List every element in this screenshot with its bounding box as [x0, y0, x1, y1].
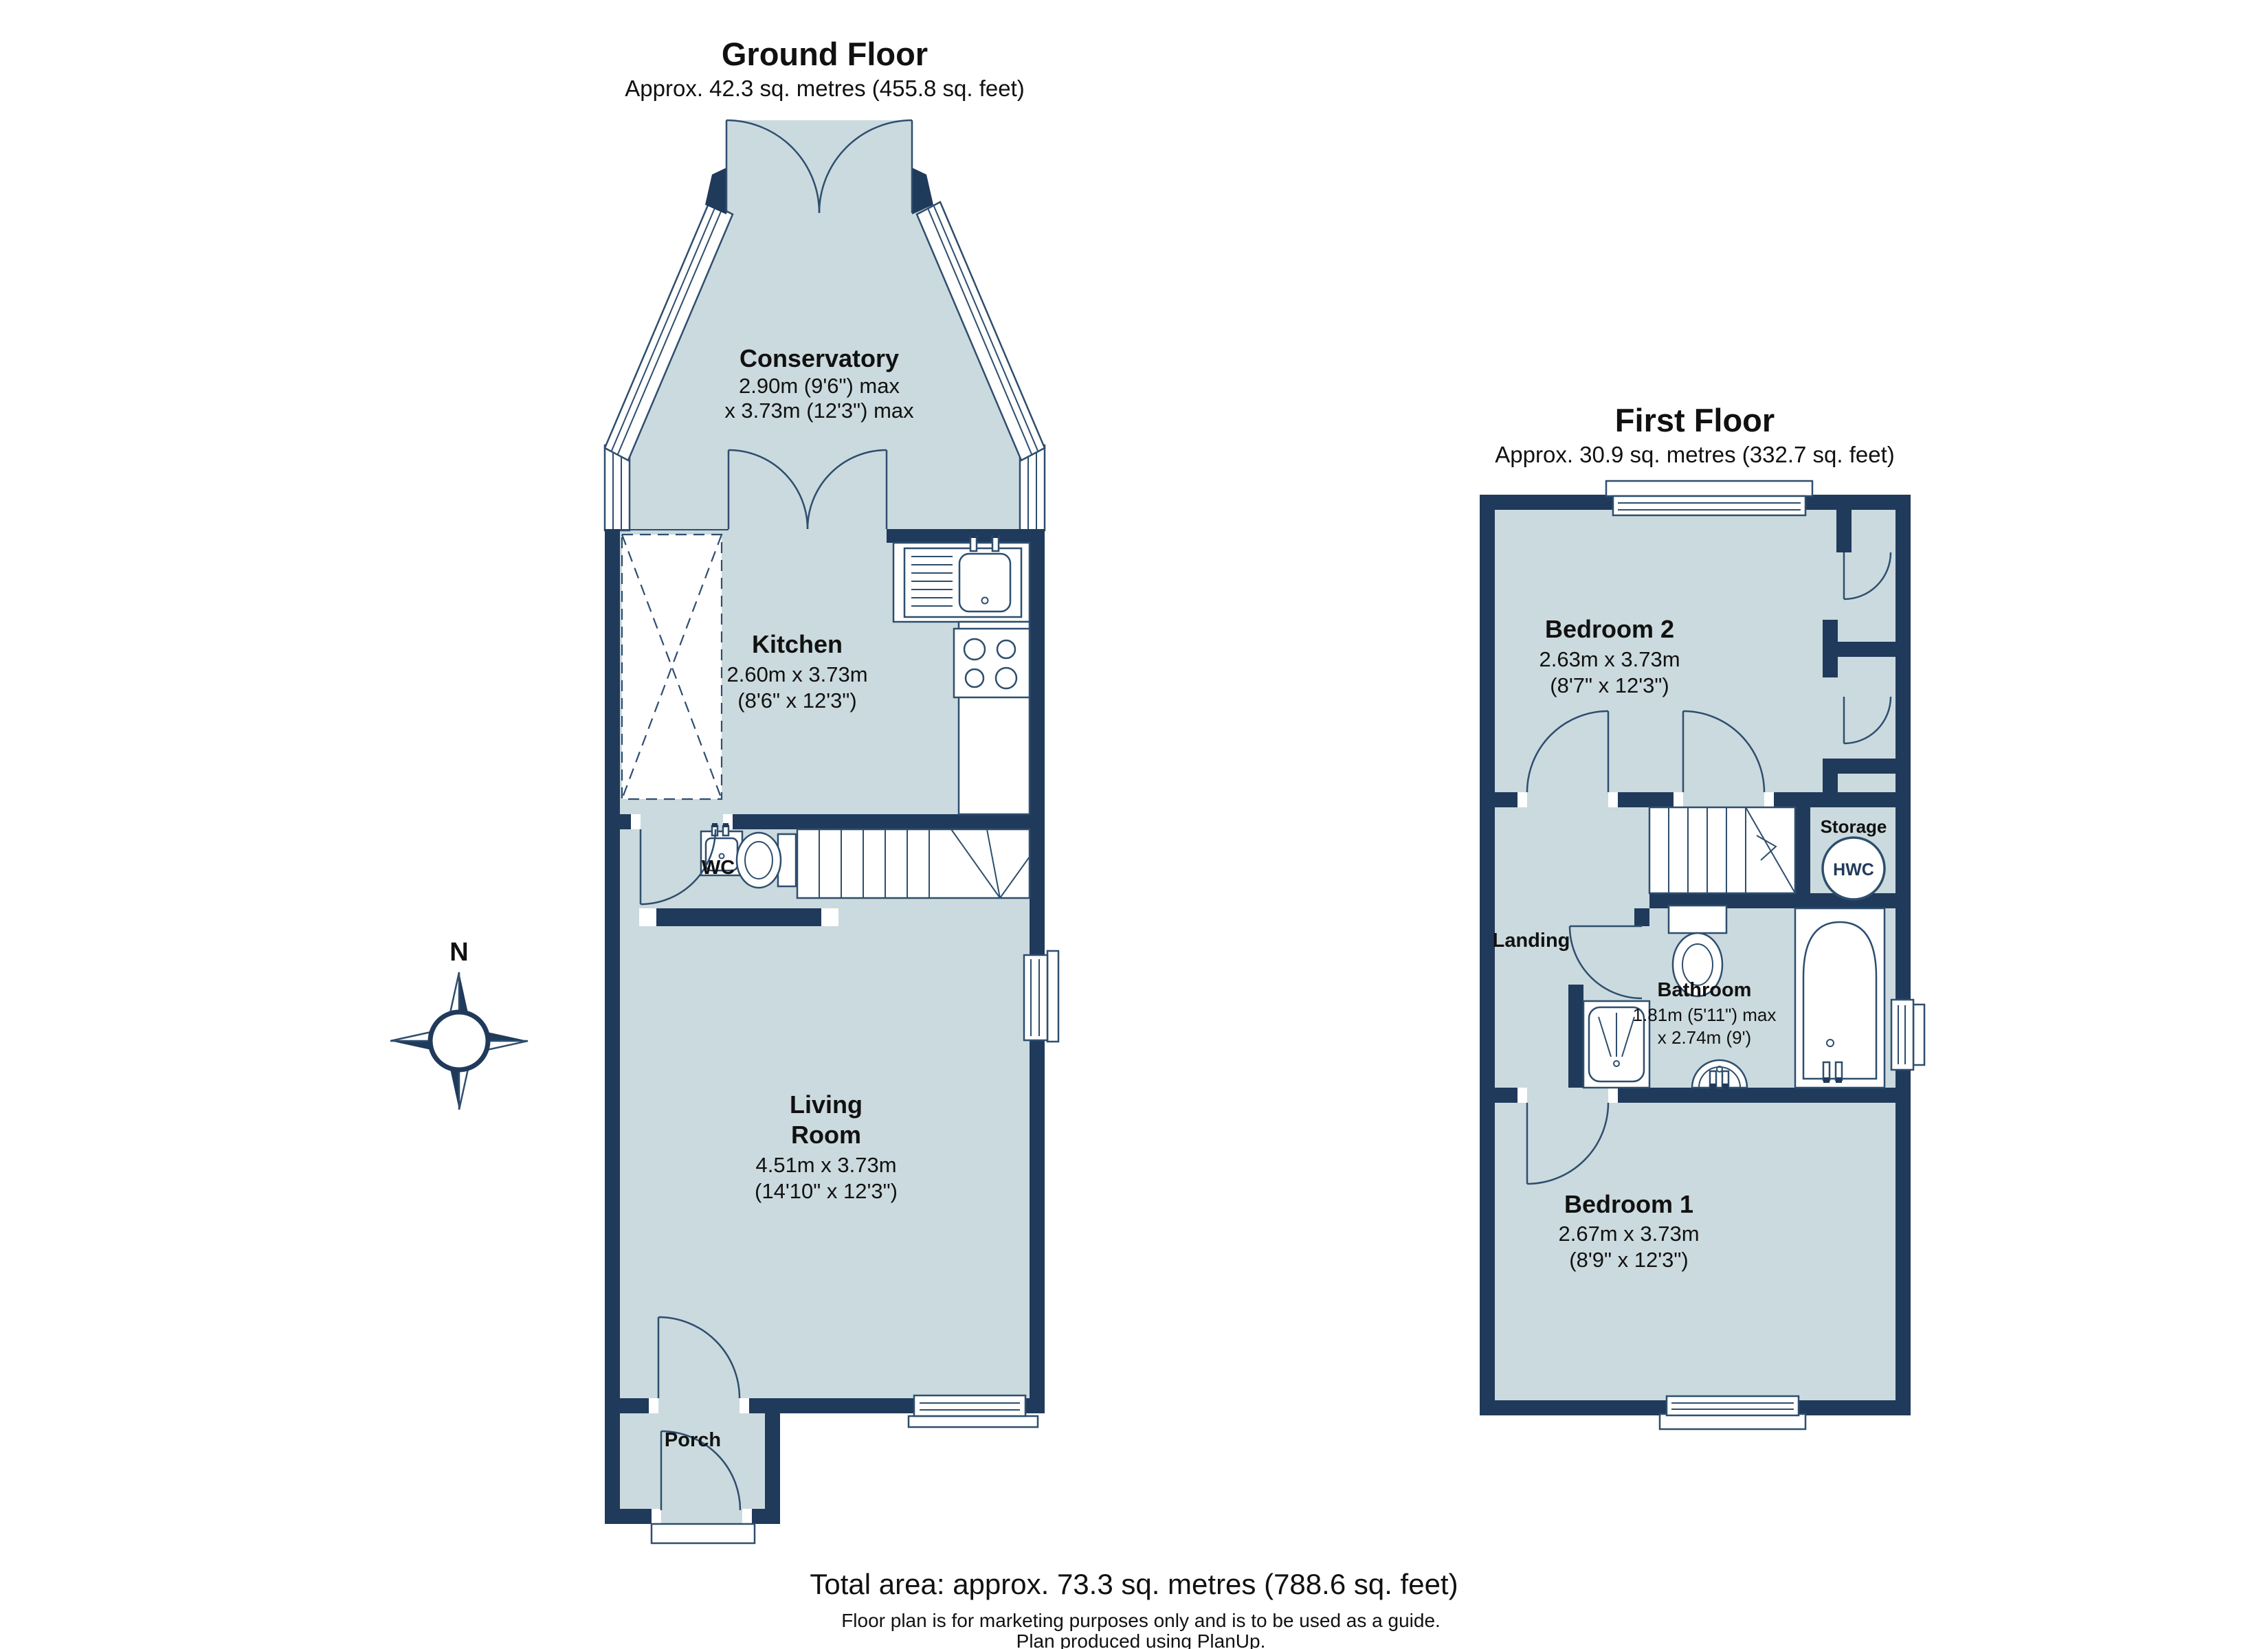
- ground-floor-title: Ground Floor: [722, 36, 928, 72]
- dashed-appliance-space: [622, 535, 722, 799]
- room-dims-bedroom1-1: 2.67m x 3.73m: [1558, 1222, 1699, 1246]
- sink-tap: [992, 536, 999, 551]
- entrance-step: [652, 1524, 755, 1543]
- storage-area: Storage HWC: [1821, 816, 1887, 899]
- living-room-side-window: [1024, 951, 1058, 1042]
- room-label-bedroom2: Bedroom 2: [1545, 615, 1674, 643]
- room-dims-bedroom1-2: (8'9" x 12'3"): [1569, 1248, 1688, 1272]
- room-dims-living-1: 4.51m x 3.73m: [755, 1153, 896, 1177]
- room-dims-living-2: (14'10" x 12'3"): [755, 1179, 898, 1203]
- total-area-text: Total area: approx. 73.3 sq. metres (788…: [810, 1568, 1458, 1600]
- room-dims-conservatory-1: 2.90m (9'6") max: [739, 374, 900, 398]
- room-dims-conservatory-2: x 3.73m (12'3") max: [724, 399, 914, 423]
- bedroom1-window: [1660, 1396, 1805, 1429]
- room-label-storage: Storage: [1821, 816, 1887, 837]
- room-dims-bedroom2-1: 2.63m x 3.73m: [1539, 647, 1680, 671]
- kitchen-hob-counter: [954, 622, 1030, 814]
- ground-floor-subtitle: Approx. 42.3 sq. metres (455.8 sq. feet): [625, 76, 1024, 101]
- kitchen-sink-counter: [893, 533, 1030, 622]
- ground-floor-plan: Ground Floor Approx. 42.3 sq. metres (45…: [605, 36, 1058, 1543]
- room-label-porch: Porch: [665, 1429, 721, 1451]
- hob: [954, 629, 1030, 697]
- floorplan-page: Ground Floor Approx. 42.3 sq. metres (45…: [0, 0, 2268, 1649]
- sink-bowl: [959, 554, 1010, 612]
- produced-text: Plan produced using PlanUp.: [1016, 1630, 1266, 1649]
- room-label-living-1: Living: [790, 1090, 863, 1119]
- compass-circle: [430, 1012, 488, 1070]
- room-label-wc: WC: [702, 857, 735, 879]
- first-floor-plan: First Floor Approx. 30.9 sq. metres (332…: [1480, 402, 1924, 1429]
- bathroom-window: [1891, 1000, 1924, 1070]
- living-room-bottom-window: [909, 1395, 1038, 1427]
- room-label-conservatory: Conservatory: [740, 344, 899, 372]
- first-floor-subtitle: Approx. 30.9 sq. metres (332.7 sq. feet): [1495, 442, 1894, 467]
- wc-toilet: [737, 833, 796, 888]
- room-dims-bathroom-2: x 2.74m (9'): [1658, 1027, 1751, 1048]
- room-label-kitchen: Kitchen: [752, 630, 843, 658]
- north-label: N: [449, 938, 468, 967]
- room-label-living-2: Room: [791, 1121, 861, 1149]
- sink-tap: [970, 536, 977, 551]
- disclaimer-text: Floor plan is for marketing purposes onl…: [841, 1610, 1441, 1631]
- first-floor-title: First Floor: [1615, 402, 1775, 438]
- bedroom2-window: [1606, 481, 1812, 515]
- hwc-label: HWC: [1833, 860, 1874, 879]
- ground-stairs: [797, 829, 1030, 898]
- room-label-bathroom: Bathroom: [1658, 979, 1752, 1001]
- first-floor-stairs: [1649, 807, 1795, 893]
- room-label-landing: Landing: [1493, 930, 1570, 952]
- room-dims-bathroom-1: 1.81m (5'11") max: [1633, 1005, 1777, 1025]
- room-dims-kitchen-2: (8'6" x 12'3"): [737, 688, 856, 713]
- footer: Total area: approx. 73.3 sq. metres (788…: [810, 1568, 1458, 1649]
- room-dims-kitchen-1: 2.60m x 3.73m: [726, 662, 867, 686]
- bathroom-bath: [1795, 908, 1885, 1088]
- room-label-bedroom1: Bedroom 1: [1564, 1190, 1693, 1218]
- compass-rose: N: [390, 938, 528, 1110]
- room-dims-bedroom2-2: (8'7" x 12'3"): [1550, 673, 1669, 697]
- porch-floor: [620, 1413, 765, 1509]
- floorplan-drawing: Ground Floor Approx. 42.3 sq. metres (45…: [0, 0, 2268, 1649]
